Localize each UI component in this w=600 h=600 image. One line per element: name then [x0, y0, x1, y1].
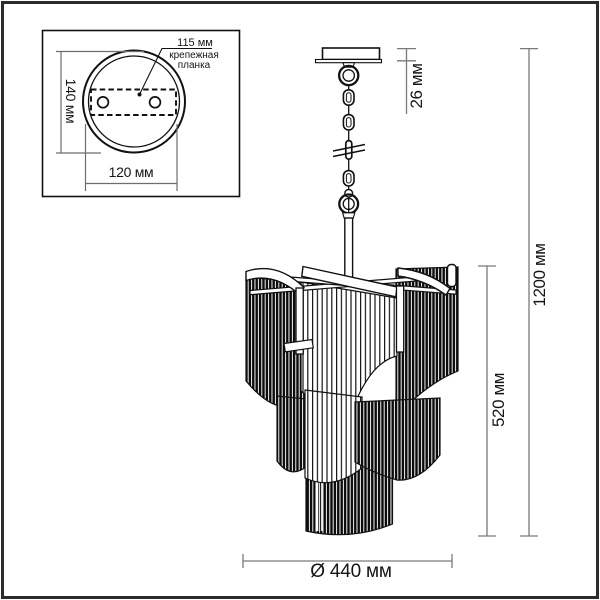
ceiling-canopy: [316, 48, 382, 67]
tier2-left-curtain: [277, 396, 306, 472]
mount-base-height-label: 140 мм: [63, 79, 79, 124]
chain-break-link: [346, 141, 352, 160]
overall-height-label: 1200 мм: [530, 243, 550, 306]
canopy-height-label: 26 мм: [407, 63, 427, 108]
mount-plate-caption: крепежная планка: [169, 51, 219, 73]
mount-base-width-label: 120 мм: [109, 164, 154, 180]
chandelier-figure: [246, 48, 458, 535]
mount-plate-width-label: 115 мм: [177, 37, 213, 49]
chandelier-dimension-drawing: 115 мм крепежная планка 140 мм 120 мм 26…: [0, 0, 600, 600]
suspension-chain: [333, 66, 365, 214]
right-strut: [397, 286, 404, 352]
mount-plate-caption-line2: планка: [169, 62, 219, 73]
tier2-center-rods: [305, 390, 362, 483]
stem-rod: [343, 213, 355, 284]
drawing-canvas: [0, 0, 600, 600]
diameter-label: Ø 440 мм: [310, 561, 392, 583]
rod-shade-tiers: [246, 267, 458, 535]
tier2-right-curtain: [355, 398, 440, 480]
tier1-center-rods: [301, 282, 397, 409]
shade-height-label: 520 мм: [489, 373, 509, 427]
